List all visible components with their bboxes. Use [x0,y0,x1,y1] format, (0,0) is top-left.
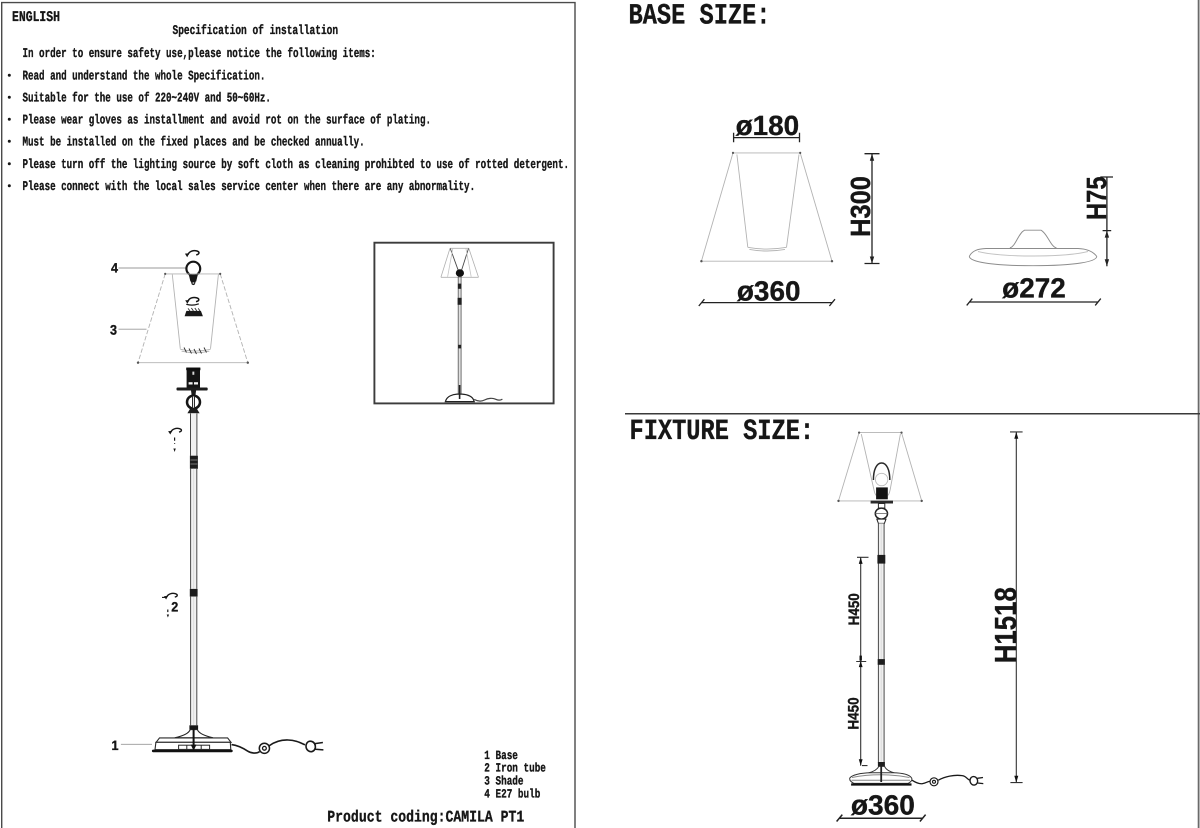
svg-text:Suitable for the use of 220~24: Suitable for the use of 220~240V and 50~… [23,91,271,106]
svg-text:ø272: ø272 [1002,273,1066,304]
svg-text:Product coding:CAMILA PT1: Product coding:CAMILA PT1 [327,808,524,826]
svg-text:Please turn off the lighting s: Please turn off the lighting source by s… [23,157,570,172]
svg-text:H450: H450 [846,697,863,729]
svg-text:3 Shade: 3 Shade [484,775,523,789]
svg-text:ø180: ø180 [736,110,800,141]
svg-text:H75: H75 [1081,176,1112,220]
svg-text:Please connect with the local: Please connect with the local sales serv… [23,179,476,194]
svg-text:Read and understand the whole: Read and understand the whole Specificat… [23,69,266,84]
svg-text:H450: H450 [846,593,863,625]
svg-text:H300: H300 [845,176,876,237]
svg-text:2: 2 [171,600,178,615]
svg-text:1: 1 [112,738,119,753]
svg-text:ø360: ø360 [737,276,801,307]
svg-text:BASE SIZE:: BASE SIZE: [629,0,771,32]
svg-text:FIXTURE SIZE:: FIXTURE SIZE: [630,415,815,448]
svg-text:4 E27 bulb: 4 E27 bulb [484,788,540,802]
svg-text:ENGLISH: ENGLISH [12,10,60,26]
svg-text:H1518: H1518 [989,587,1023,663]
svg-text:Must be installed on the fixed: Must be installed on the fixed places an… [23,135,365,150]
svg-text:In order to ensure safety use,: In order to ensure safety use,please not… [23,46,376,61]
svg-text:Please wear gloves as installm: Please wear gloves as installment and av… [23,113,432,128]
svg-text:4: 4 [111,261,118,276]
svg-text:Specification of installation: Specification of installation [173,23,339,38]
svg-text:2 Iron tube: 2 Iron tube [484,762,546,776]
svg-text:3: 3 [110,323,117,338]
svg-text:ø360: ø360 [851,790,915,821]
